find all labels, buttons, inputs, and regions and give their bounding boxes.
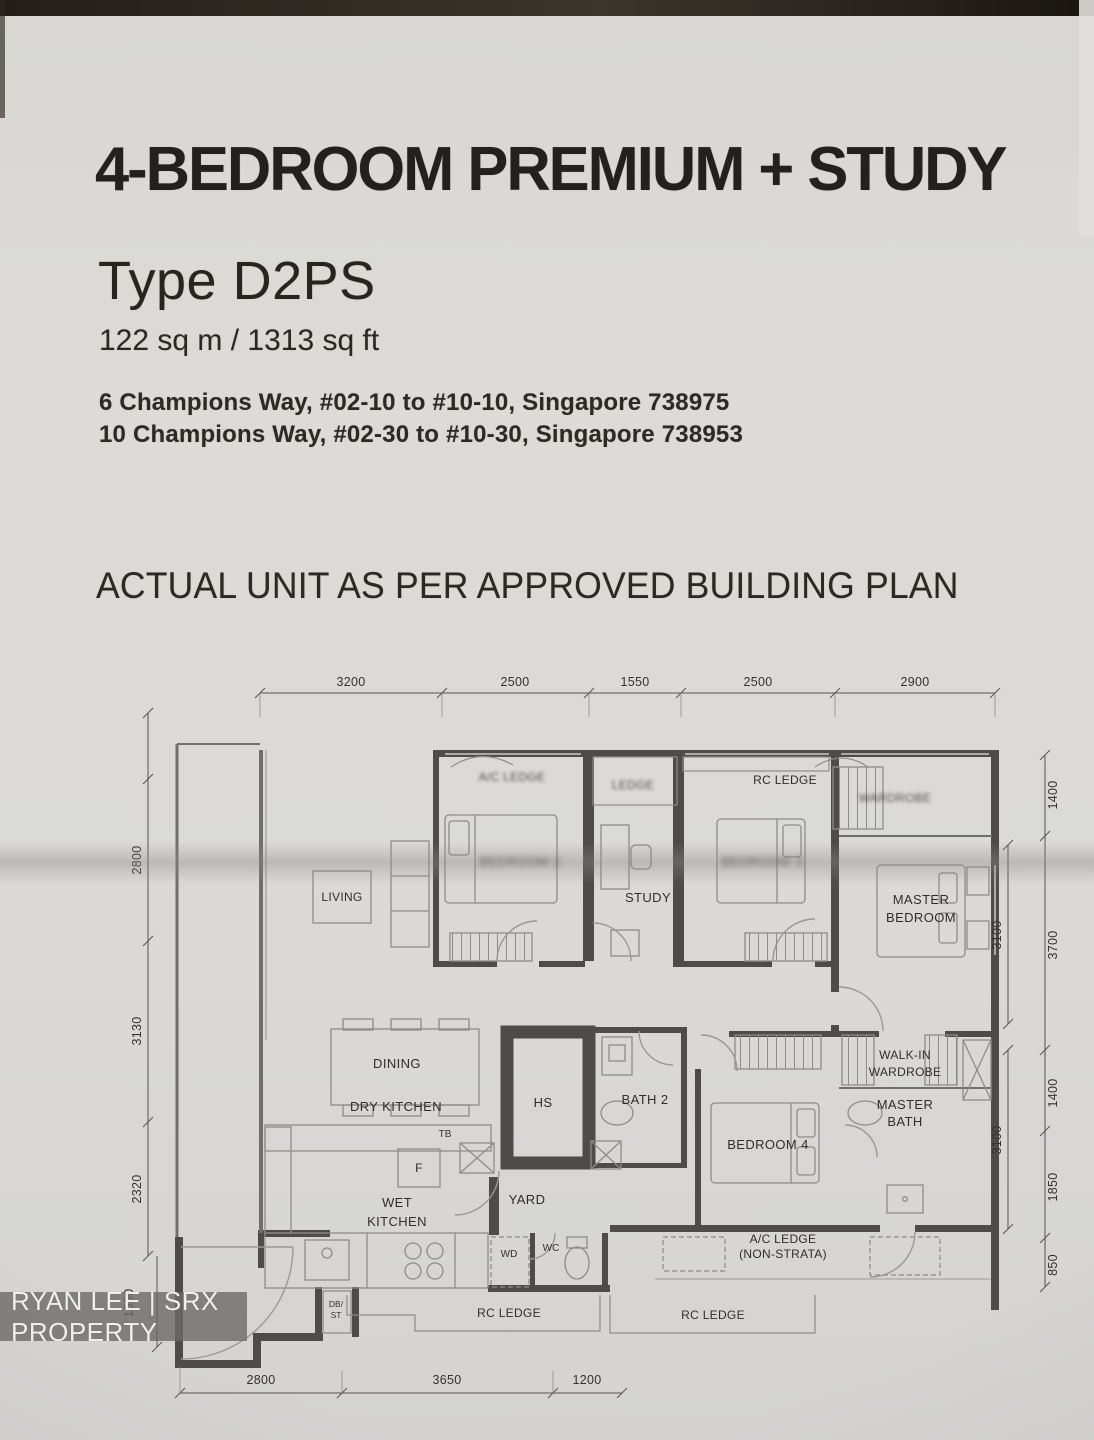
dim-bottom-2: 3650 <box>432 1373 461 1387</box>
room-label-study: STUDY <box>625 890 671 905</box>
room-label-bath2: BATH 2 <box>622 1092 669 1107</box>
label-wc: WC <box>543 1243 560 1254</box>
photo-artifact-top-edge <box>0 0 1094 16</box>
room-label-bedroom4: BEDROOM 4 <box>727 1137 809 1152</box>
dim-right-outer-2: 3700 <box>1046 930 1060 959</box>
dim-top-3: 1550 <box>620 675 649 689</box>
photo-artifact-right-edge <box>1079 0 1094 236</box>
label-rc-ledge-bottom-1: RC LEDGE <box>477 1306 541 1320</box>
dim-top-5: 2900 <box>900 675 929 689</box>
room-label-hs: HS <box>534 1095 553 1110</box>
room-label-walkin-1: WALK-IN <box>879 1048 931 1062</box>
floor-plan-photo: 4-BEDROOM PREMIUM + STUDY Type D2PS 122 … <box>0 0 1094 1440</box>
room-label-master-bath-1: MASTER <box>877 1097 934 1112</box>
label-rc-ledge-bottom-2: RC LEDGE <box>681 1308 745 1322</box>
room-label-master-bath-2: BATH <box>887 1114 922 1129</box>
dim-bottom-1: 2800 <box>246 1373 275 1387</box>
floor-plan: LIVING BEDROOM 2 STUDY BEDROOM 3 MASTER … <box>115 655 1085 1420</box>
label-rc-ledge-top: RC LEDGE <box>753 773 817 787</box>
dim-bottom-3: 1200 <box>572 1373 601 1387</box>
dim-left-2: 3130 <box>130 1016 144 1045</box>
page-title: 4-BEDROOM PREMIUM + STUDY <box>95 134 1006 205</box>
dim-right-outer-5: 850 <box>1046 1254 1060 1276</box>
unit-area: 122 sq m / 1313 sq ft <box>99 324 379 358</box>
room-label-wet-kitchen-1: WET <box>382 1195 412 1210</box>
dim-right-outer-3: 1400 <box>1046 1078 1060 1107</box>
room-label-master-bedroom-2: BEDROOM <box>886 910 956 925</box>
dim-right-outer-4: 1850 <box>1046 1172 1060 1201</box>
room-label-yard: YARD <box>509 1192 546 1207</box>
room-label-living: LIVING <box>321 890 362 904</box>
room-label-walkin-2: WARDROBE <box>869 1065 942 1079</box>
label-tb: TB <box>439 1129 452 1140</box>
dim-left-1: 2800 <box>130 845 144 874</box>
photo-artifact-left-edge <box>0 0 5 118</box>
address-line-1: 6 Champions Way, #02-10 to #10-10, Singa… <box>99 389 729 417</box>
dim-top-4: 2500 <box>743 675 772 689</box>
room-label-dry-kitchen: DRY KITCHEN <box>350 1099 442 1114</box>
dim-right-inner-2: 3100 <box>990 1125 1004 1154</box>
label-wd: WD <box>501 1249 518 1260</box>
dim-top-2: 2500 <box>500 675 529 689</box>
room-label-dining: DINING <box>373 1056 421 1071</box>
dim-left-3: 2320 <box>130 1174 144 1203</box>
address-line-2: 10 Champions Way, #02-30 to #10-30, Sing… <box>99 421 743 449</box>
label-db: DB/ <box>329 1299 344 1309</box>
dim-top-1: 3200 <box>336 675 365 689</box>
room-label-master-bedroom-1: MASTER <box>893 892 950 907</box>
watermark: RYAN LEE | SRX PROPERTY <box>0 1292 247 1341</box>
room-label-wet-kitchen-2: KITCHEN <box>367 1214 427 1229</box>
label-ac-ledge-2: (NON-STRATA) <box>739 1247 827 1261</box>
label-ac-ledge-top: A/C LEDGE <box>479 770 546 784</box>
label-ac-ledge-1: A/C LEDGE <box>750 1232 817 1246</box>
plan-note: ACTUAL UNIT AS PER APPROVED BUILDING PLA… <box>96 565 959 607</box>
dim-right-outer-1: 1400 <box>1046 780 1060 809</box>
label-fridge: F <box>415 1161 423 1175</box>
room-label-bedroom3: BEDROOM 3 <box>721 854 803 869</box>
label-ledge-top: LEDGE <box>612 778 654 792</box>
dim-right-inner-1: 3100 <box>990 920 1004 949</box>
room-label-bedroom2: BEDROOM 2 <box>479 854 561 869</box>
room-label-wardrobe-blur: WARDROBE <box>859 791 932 805</box>
unit-type: Type D2PS <box>98 250 376 312</box>
label-st: ST <box>331 1310 342 1320</box>
